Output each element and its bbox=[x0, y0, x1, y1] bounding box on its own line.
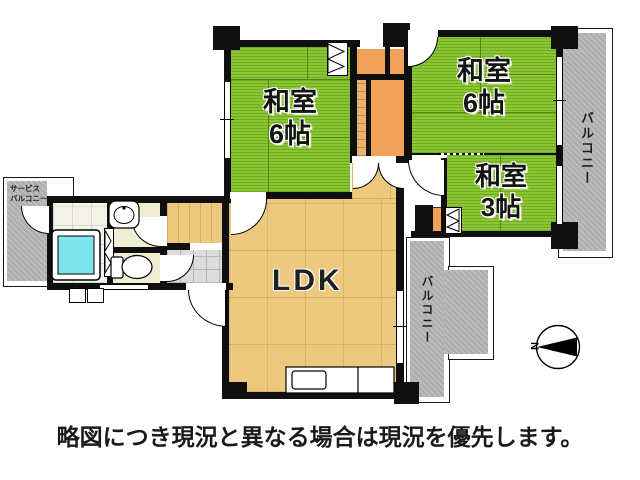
pillar bbox=[551, 26, 578, 49]
door-opening bbox=[160, 216, 167, 246]
fusuma-dashed-line bbox=[438, 153, 484, 155]
bathroom-floor bbox=[53, 203, 107, 283]
balcony-right-label: バルコニー bbox=[577, 88, 596, 208]
wall bbox=[396, 162, 404, 399]
room-label-ldk: LDK bbox=[272, 264, 343, 298]
room-label-washitsu-small: 和室 3帖 bbox=[449, 161, 553, 222]
wall bbox=[385, 47, 390, 74]
pillar bbox=[383, 23, 410, 47]
tatami-line bbox=[307, 47, 308, 79]
room-label-washitsu-left: 和室 6帖 bbox=[238, 87, 342, 151]
wall bbox=[107, 247, 167, 253]
window-tick bbox=[393, 326, 407, 327]
wall bbox=[411, 231, 572, 237]
wall bbox=[350, 74, 412, 80]
folding-door-bathroom bbox=[104, 228, 114, 277]
entry-double-door-leaf bbox=[69, 288, 86, 303]
balcony-bottom-ext-floor bbox=[444, 270, 488, 354]
wall bbox=[47, 196, 233, 203]
compass-icon bbox=[537, 326, 580, 369]
closet-top-left bbox=[355, 49, 385, 74]
window-ldk-balcony bbox=[396, 291, 404, 363]
entrance-opening bbox=[186, 283, 226, 290]
window bbox=[556, 57, 563, 145]
service-balcony-line2: バルコニー bbox=[10, 194, 47, 204]
door-opening bbox=[230, 192, 266, 199]
pillar bbox=[394, 382, 419, 404]
room-name: 和室 bbox=[238, 87, 342, 119]
wall bbox=[411, 153, 563, 155]
window bbox=[100, 284, 148, 290]
balcony-bottom-label: バルコニー bbox=[419, 258, 436, 362]
closet-top-right bbox=[390, 49, 404, 74]
hallway-floor bbox=[167, 203, 222, 243]
entry-double-door-leaf bbox=[87, 288, 104, 303]
entrance-door-arc bbox=[188, 290, 227, 327]
wall bbox=[350, 47, 357, 163]
door-opening bbox=[408, 30, 438, 37]
window-tick bbox=[220, 119, 234, 120]
wall bbox=[366, 80, 371, 156]
window bbox=[224, 82, 231, 158]
pillar bbox=[222, 382, 247, 398]
folding-door-washitsu-left bbox=[327, 42, 348, 76]
window-tick bbox=[553, 100, 566, 101]
tatami-line bbox=[231, 79, 350, 80]
room-size: 6帖 bbox=[432, 88, 536, 120]
room-name: 和室 bbox=[432, 56, 536, 88]
room-size: 6帖 bbox=[238, 119, 342, 151]
service-balcony-line1: サービス bbox=[10, 184, 47, 194]
compass-north-label: N bbox=[528, 342, 540, 350]
wall bbox=[415, 205, 433, 235]
pillar bbox=[551, 222, 578, 249]
door-opening bbox=[160, 255, 167, 281]
caption-text: 略図につき現況と異なる場合は現況を優先します。 bbox=[0, 418, 640, 452]
service-balcony-label: サービス バルコニー bbox=[10, 184, 47, 204]
wall bbox=[222, 392, 404, 399]
closet-main bbox=[371, 80, 404, 156]
pillar bbox=[213, 26, 240, 50]
toilet-room-floor bbox=[113, 253, 160, 283]
room-label-washitsu-right: 和室 6帖 bbox=[432, 56, 536, 120]
room-size: 3帖 bbox=[449, 192, 553, 223]
window bbox=[556, 166, 563, 224]
door-opening bbox=[352, 156, 396, 163]
room-name: 和室 bbox=[449, 161, 553, 192]
floor-plan: 和室 6帖 和室 6帖 和室 3帖 LDK バルコニー バルコニー サービス バ… bbox=[0, 0, 640, 480]
